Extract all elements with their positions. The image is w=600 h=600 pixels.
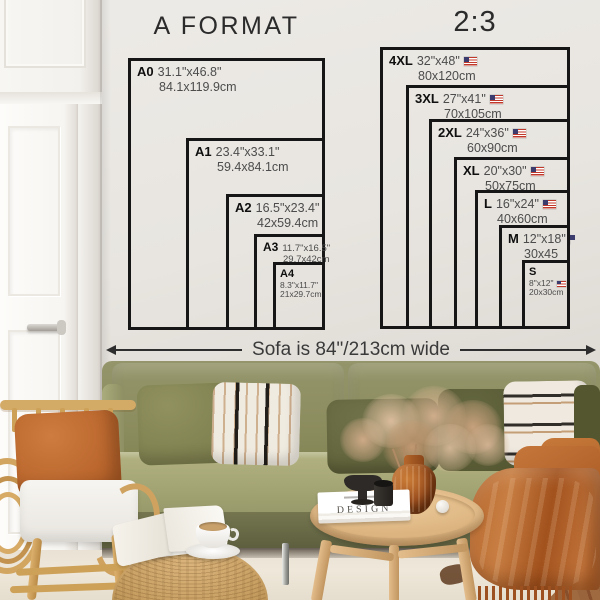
size-inches: 16.5"x23.4" (256, 201, 320, 215)
us-flag-icon (464, 57, 477, 66)
size-cm: 21x29.7cm (280, 290, 322, 300)
coffee-surface (199, 522, 227, 531)
us-flag-icon (513, 129, 526, 138)
pillow-striped-left (211, 382, 301, 466)
arrow-left-icon (106, 345, 116, 355)
us-flag-icon (531, 167, 544, 176)
size-inches: 20"x30" (484, 164, 527, 178)
arrow-right-icon (586, 345, 596, 355)
wall-molding (4, 0, 86, 68)
white-sphere-decor (436, 500, 449, 513)
throw-blanket-fringe (478, 586, 572, 600)
black-bowl-base (351, 499, 374, 505)
chart-title-a-format: A FORMAT (128, 12, 325, 41)
size-label: XL (463, 164, 480, 179)
arrow-line (116, 349, 242, 351)
size-inches: 31.1"x46.8" (158, 65, 222, 79)
size-label: A4 (280, 268, 294, 281)
book-page (112, 513, 172, 568)
us-flag-icon (557, 281, 566, 287)
size-cm: 60x90cm (467, 141, 567, 155)
sofa-width-note: Sofa is 84"/213cm wide (106, 337, 596, 363)
size-inches: 24"x36" (466, 126, 509, 140)
sofa-width-text: Sofa is 84"/213cm wide (252, 339, 450, 361)
size-label: A2 (235, 201, 252, 216)
size-label: A3 (263, 241, 278, 255)
door-handle-rosette (57, 320, 66, 335)
size-inches: 16"x24" (496, 197, 539, 211)
size-cm: 20x30cm (529, 288, 567, 298)
size-label: M (508, 232, 519, 247)
size-label: S (529, 266, 536, 279)
throw-blanket-folds (478, 478, 596, 586)
size-cm: 80x120cm (418, 69, 567, 83)
size-box-a4: A48.3"x11.7"21x29.7cm (273, 262, 325, 330)
arrow-line (460, 349, 586, 351)
size-inches: 27"x41" (443, 92, 486, 106)
size-label: A1 (195, 145, 212, 160)
size-label: 2XL (438, 126, 462, 141)
size-inches: 32"x48" (417, 54, 460, 68)
dried-flowers (424, 424, 476, 472)
chart-title-2-3: 2:3 (380, 6, 570, 39)
size-inches: 23.4"x33.1" (216, 145, 280, 159)
us-flag-icon (490, 95, 503, 104)
size-label: L (484, 197, 492, 212)
size-cm: 42x59.4cm (257, 216, 322, 230)
size-cm: 84.1x119.9cm (159, 80, 322, 94)
size-box-s: S8"x12"20x30cm (522, 260, 570, 329)
rattan-chair-top-rail (0, 400, 136, 410)
size-label: 4XL (389, 54, 413, 69)
size-label: 3XL (415, 92, 439, 107)
sofa-leg (282, 543, 289, 585)
us-flag-icon (543, 200, 556, 209)
size-label: A0 (137, 65, 154, 80)
size-cm: 59.4x84.1cm (217, 160, 322, 174)
door-panel-upper (8, 126, 60, 296)
poster-size-guide-image: DESIGN A FORMAT 2:3 A031.1"x46.8"84.1x11… (0, 0, 600, 600)
door-top-trim (0, 92, 102, 104)
size-inches: 12"x18" (523, 232, 566, 246)
black-candle-holder-top (374, 480, 393, 487)
